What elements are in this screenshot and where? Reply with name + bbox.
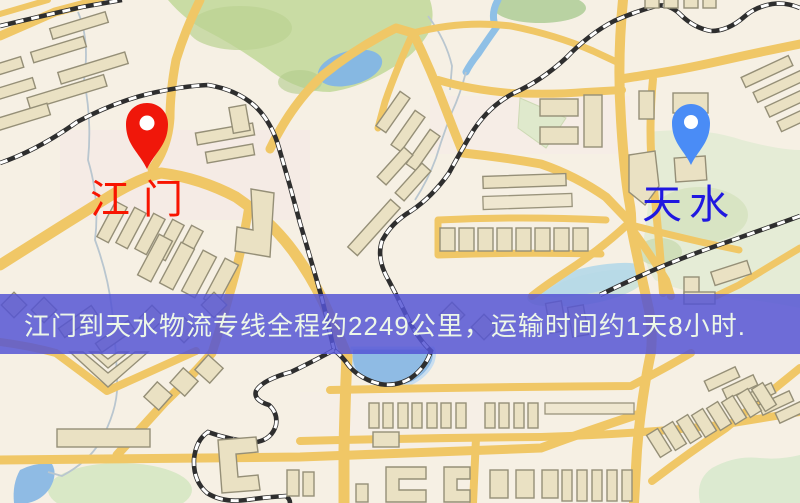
route-info-text: 江门到天水物流专线全程约2249公里，运输时间约1天8小时. <box>0 306 746 343</box>
destination-city-label: 天水 <box>642 185 736 225</box>
logistics-route-map: 江门 天水 江门到天水物流专线全程约2249公里，运输时间约1天8小时. <box>0 0 800 503</box>
destination-pin-hole <box>684 115 698 129</box>
map-image <box>0 0 800 503</box>
route-info-banner: 江门到天水物流专线全程约2249公里，运输时间约1天8小时. <box>0 294 800 354</box>
origin-city-label: 江门 <box>90 180 196 220</box>
origin-pin-hole <box>140 116 155 131</box>
